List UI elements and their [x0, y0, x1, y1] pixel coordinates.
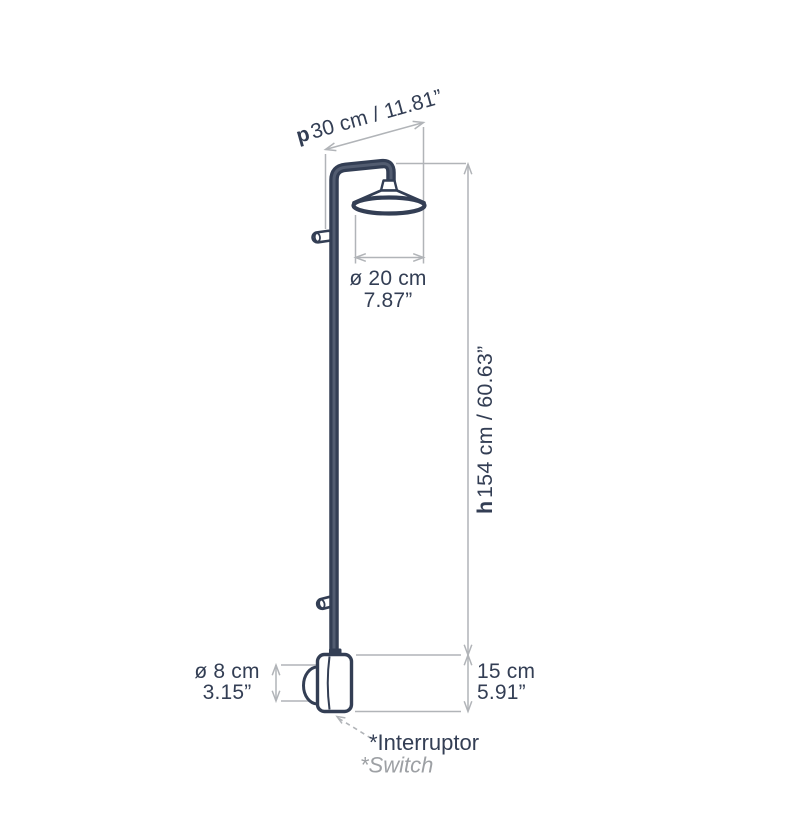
dimension-labels: p 30 cm / 11.81” ø 20 cm 7.87” h 154 cm … [194, 85, 535, 777]
base-offset-line2: 5.91” [477, 681, 526, 704]
base-diameter-label: ø 8 cm 3.15” [194, 660, 259, 704]
base-dome [304, 667, 318, 704]
diagram-canvas: p 30 cm / 11.81” ø 20 cm 7.87” h 154 cm … [0, 0, 798, 816]
projection-dimension-label: p 30 cm / 11.81” [294, 85, 445, 147]
base-diameter-line2: 3.15” [203, 681, 252, 704]
shade-diameter-line2: 7.87” [364, 289, 413, 312]
lamp-shade [354, 181, 425, 214]
height-dimension-label: h 154 cm / 60.63” [473, 346, 497, 514]
lamp-dimension-diagram: p 30 cm / 11.81” ø 20 cm 7.87” h 154 cm … [0, 0, 798, 816]
base-offset-label: 15 cm 5.91” [477, 660, 535, 704]
wall-base [304, 649, 352, 712]
height-prefix: h [473, 501, 497, 514]
base-body [318, 655, 352, 712]
shade-diameter-label: ø 20 cm 7.87” [349, 267, 426, 312]
shade-diameter-line1: ø 20 cm [349, 267, 426, 290]
shade-diameter-dimension-line [356, 215, 424, 264]
lamp-drawing [304, 164, 425, 712]
base-offset-dimension-line [355, 655, 472, 712]
switch-note-es: *Interruptor [369, 730, 479, 755]
height-value: 154 cm / 60.63” [473, 346, 497, 498]
pole-and-arm [334, 164, 391, 650]
switch-note: *Interruptor *Switch [360, 730, 479, 778]
switch-note-en: *Switch [360, 753, 433, 778]
base-diameter-line1: ø 8 cm [194, 660, 259, 683]
base-offset-line1: 15 cm [477, 660, 535, 683]
switch-leader-line [337, 717, 372, 739]
height-dimension-line [396, 164, 472, 656]
